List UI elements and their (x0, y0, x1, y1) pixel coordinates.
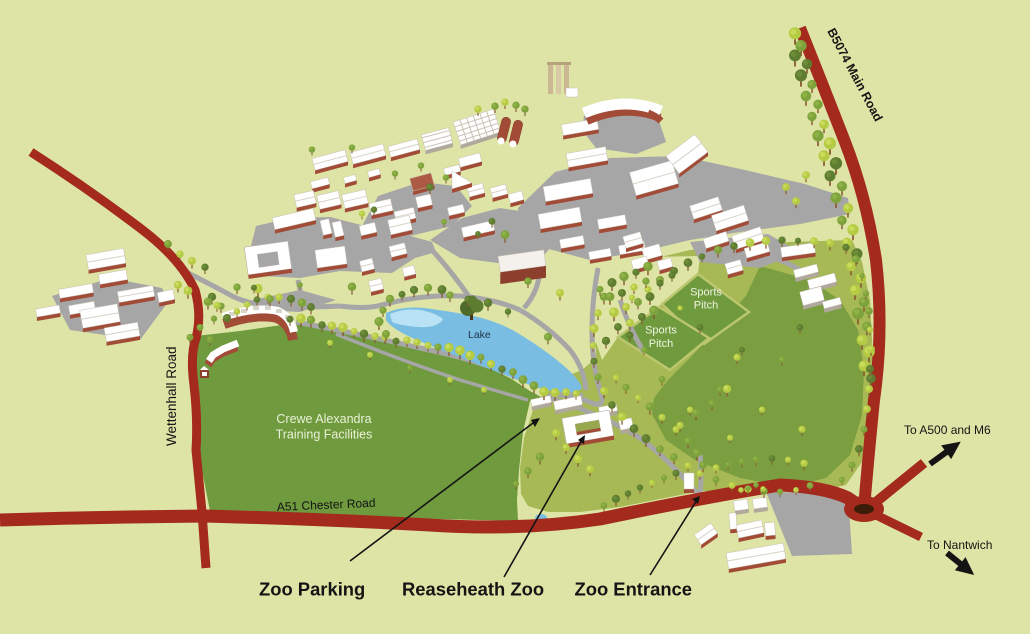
svg-text:To Nantwich: To Nantwich (927, 538, 992, 552)
svg-text:Pitch: Pitch (649, 338, 673, 350)
svg-text:To A500 and M6: To A500 and M6 (904, 423, 991, 437)
svg-text:Sports: Sports (645, 325, 677, 337)
svg-text:Training Facilities: Training Facilities (276, 428, 373, 442)
svg-text:Sports: Sports (690, 287, 722, 299)
svg-text:Lake: Lake (468, 329, 491, 341)
svg-text:Pitch: Pitch (694, 300, 718, 312)
svg-text:Reaseheath Zoo: Reaseheath Zoo (402, 579, 544, 600)
svg-text:Wettenhall Road: Wettenhall Road (164, 346, 179, 446)
svg-text:Zoo Parking: Zoo Parking (259, 579, 365, 600)
svg-text:Crewe Alexandra: Crewe Alexandra (276, 412, 371, 426)
svg-text:Zoo Entrance: Zoo Entrance (575, 579, 693, 600)
